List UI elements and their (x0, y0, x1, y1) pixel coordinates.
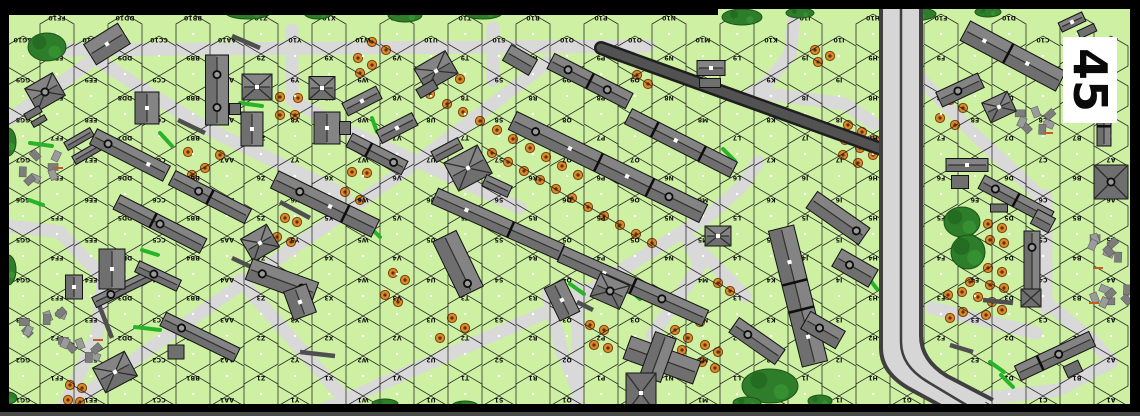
building (309, 77, 335, 100)
building-hex-dot (716, 234, 720, 238)
hex-label: L9 (733, 54, 741, 61)
hex-center-dot (22, 295, 24, 297)
hex-center-dot (974, 175, 976, 177)
hex-label: X9 (324, 54, 333, 61)
hex-center-dot (872, 353, 874, 355)
hex-center-dot (668, 393, 670, 395)
hex-label: T7 (461, 134, 470, 141)
hex-label: V5 (392, 214, 401, 221)
hex-center-dot (464, 233, 466, 235)
hex-center-dot (226, 135, 228, 137)
orchard-tree-icon (983, 219, 992, 228)
hex-center-dot (770, 255, 772, 257)
hex-center-dot (56, 393, 58, 395)
building (1021, 289, 1041, 307)
hex-center-dot (872, 33, 874, 35)
hex-center-dot (124, 393, 126, 395)
hex-center-dot (124, 193, 126, 195)
hex-label: R4 (528, 254, 538, 261)
hex-center-dot (328, 273, 330, 275)
hex-label: S7 (495, 156, 504, 163)
hex-center-dot (702, 295, 704, 297)
hex-label: W4 (357, 276, 369, 283)
hex-label: A7 (1106, 156, 1115, 163)
hex-center-dot (294, 175, 296, 177)
hex-center-dot (974, 95, 976, 97)
hex-label: FF10 (48, 14, 66, 21)
hex-center-dot (668, 273, 670, 275)
hex-center-dot (600, 113, 602, 115)
hex-center-dot (226, 335, 228, 337)
building (697, 61, 725, 76)
hex-label: W10 (355, 36, 371, 43)
hex-center-dot (328, 233, 330, 235)
hex-center-dot (940, 113, 942, 115)
hex-center-dot (294, 375, 296, 377)
orchard-tree-icon (503, 157, 512, 166)
hex-label: Y9 (291, 76, 301, 83)
hex-label: F3 (937, 294, 946, 301)
orchard-tree-icon (381, 45, 390, 54)
hex-label: I8 (836, 116, 843, 123)
hex-center-dot (22, 95, 24, 97)
orchard-tree-icon (997, 267, 1006, 276)
hex-center-dot (396, 73, 398, 75)
hex-label: T1 (461, 374, 470, 381)
orchard-tree-icon (615, 220, 624, 229)
hex-center-dot (192, 313, 194, 315)
hex-center-dot (838, 95, 840, 97)
hex-label: EE3 (85, 316, 98, 323)
hex-label: P10 (594, 14, 608, 21)
hex-label: I10 (833, 36, 845, 43)
hex-center-dot (498, 95, 500, 97)
hex-center-dot (294, 55, 296, 57)
hex-center-dot (430, 255, 432, 257)
orchard-tree-icon (400, 275, 409, 284)
hex-center-dot (90, 335, 92, 337)
hex-label: N5 (664, 214, 673, 221)
hex-label: CC6 (152, 196, 165, 203)
orchard-tree-icon (340, 187, 349, 196)
hex-center-dot (872, 73, 874, 75)
hex-center-dot (566, 335, 568, 337)
hex-center-dot (362, 135, 364, 137)
hex-label: GG7 (16, 156, 30, 163)
hex-center-dot (566, 95, 568, 97)
hex-center-dot (940, 313, 942, 315)
hex-center-dot (532, 153, 534, 155)
hex-center-dot (668, 153, 670, 155)
tree-icon (722, 9, 762, 25)
hex-label: A3 (1106, 316, 1115, 323)
hex-center-dot (396, 313, 398, 315)
hex-center-dot (974, 135, 976, 137)
hex-center-dot (430, 335, 432, 337)
hex-center-dot (158, 295, 160, 297)
hex-label: U10 (423, 36, 437, 43)
hex-center-dot (1008, 393, 1010, 395)
board-number-badge: 45 (1063, 37, 1117, 123)
hex-label: L7 (733, 134, 741, 141)
hex-label: Q2 (562, 356, 572, 363)
hex-center-dot (22, 335, 24, 337)
hex-label: F2 (937, 334, 946, 341)
hex-label: D5 (1004, 214, 1013, 221)
hex-label: E8 (971, 116, 980, 123)
hex-center-dot (260, 353, 262, 355)
hex-center-dot (464, 33, 466, 35)
hex-label: C6 (1039, 196, 1048, 203)
hex-center-dot (940, 193, 942, 195)
hex-center-dot (192, 33, 194, 35)
hex-center-dot (736, 193, 738, 195)
hex-center-dot (56, 353, 58, 355)
hex-label: E3 (971, 316, 980, 323)
tree-icon (944, 207, 980, 237)
hex-label: DD9 (118, 54, 133, 61)
hex-label: H1 (868, 374, 877, 381)
hex-label: EE1 (85, 396, 98, 403)
hex-center-dot (430, 215, 432, 217)
hex-label: U4 (426, 276, 436, 283)
hex-label: A4 (1106, 276, 1116, 283)
hex-center-dot (770, 335, 772, 337)
orchard-tree-icon (367, 60, 376, 69)
hex-center-dot (1042, 295, 1044, 297)
hex-center-dot (1008, 313, 1010, 315)
hex-label: R1 (528, 374, 537, 381)
orchard-tree-icon (843, 120, 852, 129)
tree-icon (786, 8, 814, 18)
hex-center-dot (532, 393, 534, 395)
hex-label: N6 (664, 174, 673, 181)
hex-label: P7 (597, 134, 606, 141)
hex-center-dot (430, 295, 432, 297)
hex-center-dot (328, 313, 330, 315)
hex-label: M4 (697, 276, 708, 283)
hex-label: X4 (324, 254, 334, 261)
hex-center-dot (192, 273, 194, 275)
hex-label: M1 (698, 396, 708, 403)
hex-center-dot (1076, 153, 1078, 155)
hex-label: S4 (494, 276, 503, 283)
hex-center-dot (328, 33, 330, 35)
building (206, 55, 229, 125)
hex-label: L3 (733, 294, 741, 301)
hex-center-dot (22, 55, 24, 57)
orchard-tree-icon (63, 395, 72, 404)
hex-center-dot (430, 95, 432, 97)
hex-center-dot (702, 335, 704, 337)
hex-label: K10 (764, 36, 778, 43)
hex-label: AA1 (220, 396, 234, 403)
hex-label: S10 (492, 36, 506, 43)
orchard-tree-icon (77, 383, 86, 392)
hex-label: E6 (971, 196, 980, 203)
hex-center-dot (872, 393, 874, 395)
hex-center-dot (498, 55, 500, 57)
hex-label: EE8 (85, 116, 98, 123)
hex-label: V3 (392, 294, 401, 301)
hex-label: GG4 (15, 276, 30, 283)
hex-center-dot (362, 55, 364, 57)
hex-center-dot (872, 313, 874, 315)
hex-label: D2 (1004, 334, 1013, 341)
stairwell-icon (213, 71, 220, 78)
orchard-tree-icon (293, 93, 302, 102)
hex-center-dot (736, 113, 738, 115)
orchard-tree-icon (670, 325, 679, 334)
hex-center-dot (804, 73, 806, 75)
hex-label: B7 (1072, 134, 1081, 141)
hex-center-dot (56, 73, 58, 75)
hex-center-dot (362, 375, 364, 377)
hex-label: I2 (836, 356, 843, 363)
building (242, 74, 272, 100)
building-hex-dot (965, 163, 969, 167)
hex-center-dot (600, 233, 602, 235)
hex-label: O10 (627, 36, 642, 43)
hex-center-dot (770, 215, 772, 217)
hex-label: H3 (868, 294, 877, 301)
tree-icon (28, 33, 66, 61)
hex-center-dot (804, 153, 806, 155)
hex-center-dot (736, 73, 738, 75)
hex-center-dot (566, 175, 568, 177)
hex-label: O7 (630, 156, 640, 163)
hex-center-dot (770, 135, 772, 137)
hex-center-dot (634, 255, 636, 257)
hex-label: R5 (528, 214, 537, 221)
building-hex-dot (110, 267, 114, 271)
building (314, 112, 340, 144)
hex-center-dot (600, 353, 602, 355)
hex-label: L1 (733, 374, 741, 381)
hex-label: I1 (836, 396, 843, 403)
hex-label: W9 (357, 76, 368, 83)
hex-label: W1 (357, 396, 368, 403)
hex-center-dot (56, 193, 58, 195)
hex-center-dot (838, 375, 840, 377)
hex-center-dot (566, 215, 568, 217)
hex-label: H8 (868, 94, 877, 101)
hex-label: AA5 (220, 236, 234, 243)
hex-label: I5 (836, 236, 843, 243)
hex-center-dot (804, 393, 806, 395)
hex-label: X2 (324, 334, 333, 341)
hex-center-dot (56, 113, 58, 115)
hex-label: DD8 (118, 94, 133, 101)
hex-center-dot (1042, 255, 1044, 257)
hex-label: Q6 (562, 196, 572, 203)
hex-center-dot (770, 95, 772, 97)
hex-center-dot (294, 335, 296, 337)
hex-label: Q8 (562, 116, 572, 123)
hex-center-dot (362, 335, 364, 337)
hex-center-dot (158, 335, 160, 337)
hex-center-dot (90, 215, 92, 217)
hex-center-dot (498, 135, 500, 137)
hex-label: K6 (766, 196, 775, 203)
hex-label: CC10 (149, 36, 167, 43)
hex-center-dot (600, 73, 602, 75)
hex-center-dot (600, 313, 602, 315)
hex-label: D10 (1001, 14, 1015, 21)
hex-label: O6 (630, 196, 640, 203)
hex-center-dot (736, 313, 738, 315)
orchard-tree-icon (585, 320, 594, 329)
orchard-tree-icon (347, 167, 356, 176)
hex-label: W6 (357, 196, 368, 203)
hex-center-dot (566, 375, 568, 377)
building-hex-dot (320, 86, 324, 90)
hex-label: O5 (630, 236, 640, 243)
building (700, 79, 721, 88)
orchard-tree-icon (573, 170, 582, 179)
hex-label: I9 (836, 76, 843, 83)
hex-center-dot (1042, 55, 1044, 57)
hex-center-dot (838, 55, 840, 57)
hex-center-dot (192, 113, 194, 115)
hex-label: BB1 (186, 374, 200, 381)
hex-label: N9 (664, 54, 673, 61)
hex-center-dot (532, 33, 534, 35)
tree-icon (951, 235, 985, 269)
hex-label: J1 (802, 374, 810, 381)
hex-center-dot (362, 255, 364, 257)
hex-center-dot (430, 55, 432, 57)
hex-label: U3 (426, 316, 435, 323)
hex-label: Y7 (291, 156, 301, 163)
hex-label: O9 (630, 76, 640, 83)
hex-label: Q1 (562, 396, 572, 403)
hex-center-dot (770, 55, 772, 57)
hex-center-dot (396, 233, 398, 235)
hex-label: U2 (426, 356, 435, 363)
hex-label: K9 (766, 76, 775, 83)
hex-center-dot (770, 295, 772, 297)
hex-label: Q5 (562, 236, 572, 243)
building-hex-dot (72, 285, 76, 289)
hex-center-dot (396, 153, 398, 155)
hex-center-dot (532, 193, 534, 195)
orchard-tree-icon (442, 99, 451, 108)
hex-center-dot (838, 295, 840, 297)
orchard-tree-icon (603, 343, 612, 352)
hex-label: I7 (836, 156, 843, 163)
hex-label: R10 (526, 14, 540, 21)
hex-center-dot (940, 353, 942, 355)
hex-center-dot (192, 73, 194, 75)
hex-label: I4 (835, 276, 842, 283)
hex-label: S5 (495, 236, 504, 243)
hex-label: BB7 (186, 134, 200, 141)
hex-label: FF4 (50, 254, 63, 261)
hex-center-dot (328, 73, 330, 75)
building (66, 275, 83, 299)
orchard-tree-icon (997, 305, 1006, 314)
hex-label: Q10 (559, 36, 574, 43)
hex-label: W3 (357, 316, 368, 323)
hex-center-dot (940, 73, 942, 75)
hex-center-dot (974, 335, 976, 337)
hex-center-dot (124, 233, 126, 235)
hex-center-dot (498, 335, 500, 337)
orchard-tree-icon (475, 116, 484, 125)
hex-center-dot (702, 135, 704, 137)
hex-center-dot (498, 175, 500, 177)
hex-label: Z1 (257, 374, 266, 381)
hex-center-dot (90, 95, 92, 97)
hex-label: GG9 (16, 76, 30, 83)
hex-label: AA7 (220, 156, 234, 163)
hex-label: J7 (802, 134, 810, 141)
orchard-tree-icon (492, 125, 501, 134)
hex-label: G1 (902, 396, 911, 403)
hex-label: R2 (528, 334, 537, 341)
hex-center-dot (362, 175, 364, 177)
hex-label: GG2 (16, 356, 30, 363)
hex-center-dot (464, 393, 466, 395)
hex-center-dot (158, 55, 160, 57)
building-hex-dot (709, 66, 713, 70)
hex-center-dot (294, 95, 296, 97)
building-hex-dot (325, 126, 329, 130)
hex-center-dot (226, 375, 228, 377)
hex-label: W8 (357, 116, 368, 123)
hex-center-dot (702, 55, 704, 57)
hex-label: N8 (664, 94, 673, 101)
hex-center-dot (668, 33, 670, 35)
hex-label: K7 (766, 156, 775, 163)
hex-center-dot (532, 113, 534, 115)
hex-label: X1 (324, 374, 333, 381)
hex-center-dot (1008, 33, 1010, 35)
hex-label: Z2 (257, 334, 266, 341)
building (946, 159, 988, 172)
orchard-tree-icon (380, 290, 389, 299)
hex-label: K4 (766, 276, 776, 283)
hex-label: A1 (1106, 396, 1115, 403)
hex-label: V9 (392, 54, 401, 61)
orchard-tree-icon (458, 107, 467, 116)
hex-center-dot (192, 353, 194, 355)
stone-wall (983, 300, 1013, 303)
hex-center-dot (940, 153, 942, 155)
hex-label: EE4 (84, 276, 97, 283)
orchard-tree-icon (825, 51, 834, 60)
hex-label: J5 (802, 214, 810, 221)
hex-center-dot (770, 175, 772, 177)
hex-label: BB9 (186, 54, 200, 61)
hex-label: P2 (597, 334, 606, 341)
hex-center-dot (600, 33, 602, 35)
hex-center-dot (192, 153, 194, 155)
orchard-tree-icon (183, 147, 192, 156)
hex-center-dot (702, 95, 704, 97)
hex-label: V6 (392, 174, 401, 181)
hex-map-svg: GG10GG9GG8GG7GG6GG5GG4GG3GG2GG1FF10FF9FF… (0, 0, 1140, 416)
hex-label: H2 (868, 334, 877, 341)
hex-label: O3 (630, 316, 640, 323)
orchard-tree-icon (292, 217, 301, 226)
hex-label: Y5 (291, 236, 301, 243)
hex-label: B3 (1072, 294, 1081, 301)
map-board[interactable]: GG10GG9GG8GG7GG6GG5GG4GG3GG2GG1FF10FF9FF… (0, 0, 1140, 416)
hex-center-dot (396, 353, 398, 355)
hex-label: F9 (937, 54, 946, 61)
